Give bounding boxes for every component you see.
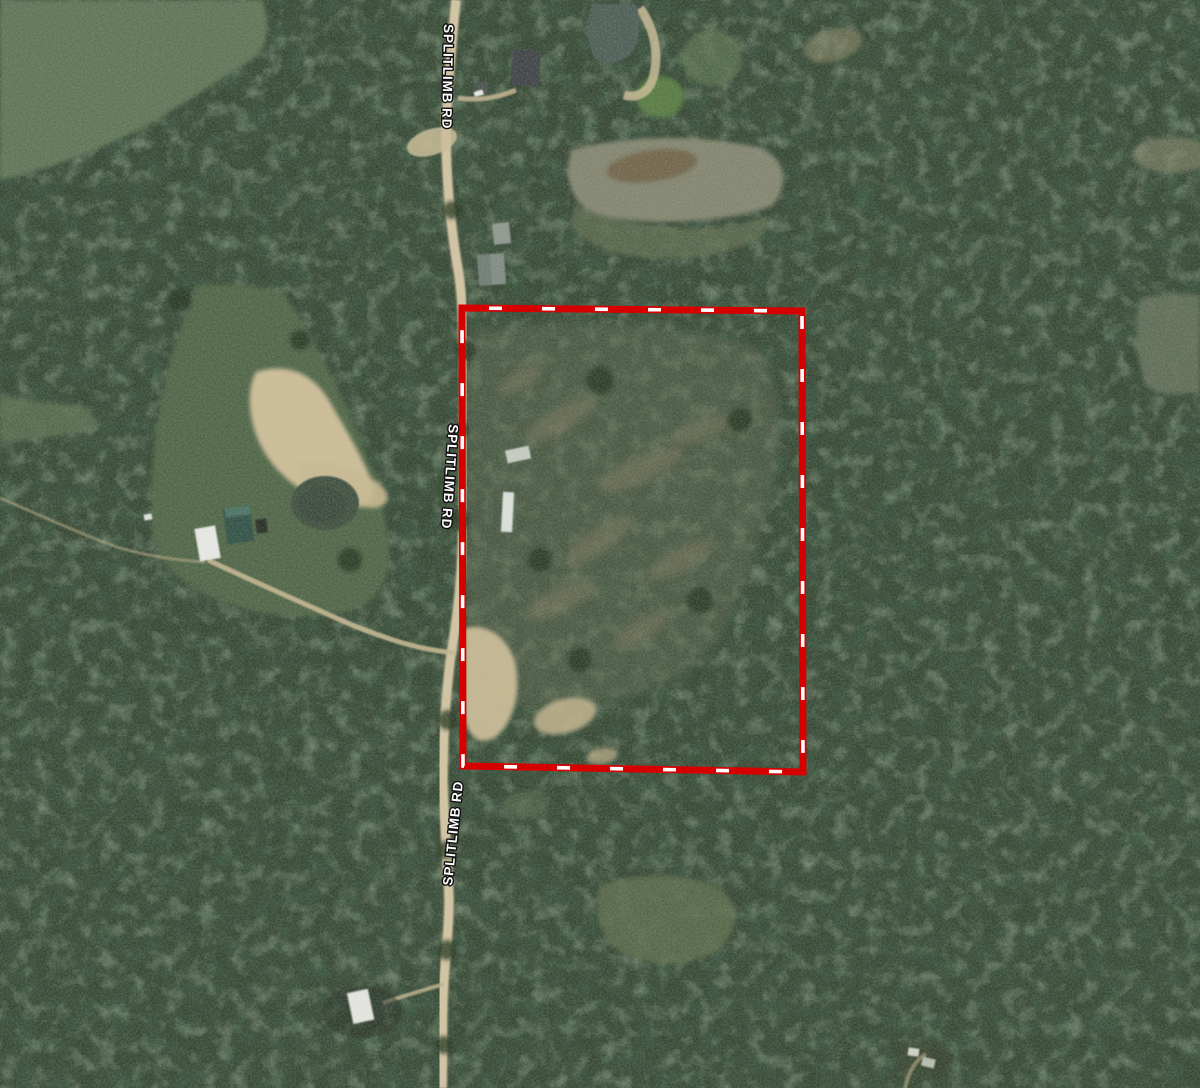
photo-grain-overlay (0, 0, 1200, 1088)
satellite-imagery: SPLITLIMB RD SPLITLIMB RD SPLITLIMB RD (0, 0, 1200, 1088)
satellite-map-view[interactable]: SPLITLIMB RD SPLITLIMB RD SPLITLIMB RD (0, 0, 1200, 1088)
road-label-top: SPLITLIMB RD (439, 24, 456, 130)
